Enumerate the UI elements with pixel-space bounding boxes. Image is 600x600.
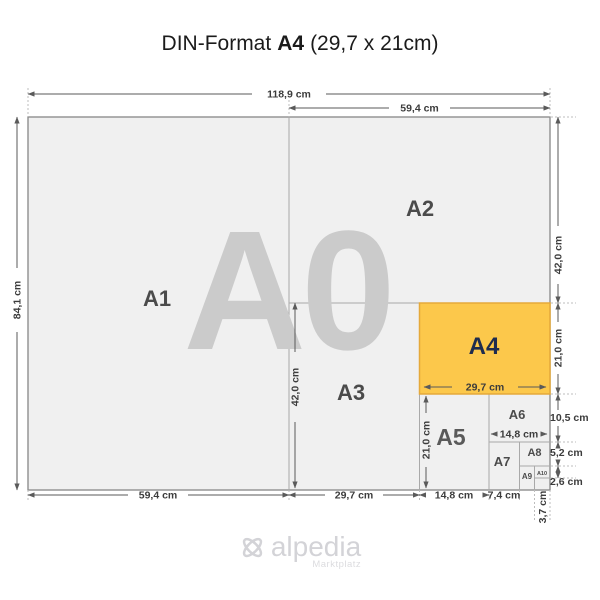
a5-label: A5 [436, 424, 466, 450]
a6-label: A6 [509, 407, 526, 422]
page-title: DIN-Format A4 (29,7 x 21cm) [0, 32, 600, 56]
format-diagram: A0 A1 A2 A3 A4 A5 A6 A7 A8 A9 A10 [0, 0, 600, 600]
a4-height-value: 21,0 cm [553, 329, 565, 368]
title-prefix: DIN-Format [162, 32, 272, 56]
a0-watermark-label: A0 [183, 196, 390, 386]
a3-height-value: 42,0 cm [290, 368, 302, 407]
a4-width-value: 29,7 cm [466, 382, 505, 394]
brand-tagline: Marktplatz [271, 559, 361, 570]
alpedia-logo: alpedia Marktplatz [0, 533, 600, 570]
dimension-a2-height: 42,0 cm [553, 117, 565, 303]
dimension-a2-width: 59,4 cm [289, 103, 550, 115]
a6-height-value: 10,5 cm [550, 412, 589, 424]
dimension-a10-height: 2,6 cm [550, 466, 583, 488]
a10-label: A10 [537, 471, 547, 477]
logo-text: alpedia Marktplatz [271, 533, 361, 570]
dimension-a6-height: 10,5 cm [550, 394, 589, 442]
a3-width-value: 29,7 cm [335, 490, 374, 502]
a2-width-value: 59,4 cm [400, 103, 439, 115]
a2-label: A2 [406, 196, 434, 221]
a8-height-value: 5,2 cm [550, 447, 583, 459]
a9-label: A9 [522, 472, 533, 481]
title-format: A4 [277, 32, 304, 56]
a0-width-value: 118,9 cm [267, 89, 311, 101]
dimension-a10-width: 3,7 cm [537, 491, 549, 524]
dimension-a3-width: 29,7 cm [289, 490, 420, 502]
a8-label: A8 [527, 447, 541, 459]
a2-height-value: 42,0 cm [553, 236, 565, 275]
a4-label: A4 [469, 333, 500, 360]
dimension-a7-width: 7,4 cm [488, 490, 521, 502]
a6-width-value: 14,8 cm [500, 429, 539, 441]
a10-width-value: 3,7 cm [537, 491, 549, 524]
a7-width-value: 7,4 cm [488, 490, 521, 502]
brand-name: alpedia [271, 533, 361, 561]
a1-label: A1 [143, 286, 171, 311]
title-size: (29,7 x 21cm) [310, 32, 438, 56]
a0-height-value: 84,1 cm [12, 281, 24, 320]
a7-label: A7 [494, 454, 511, 469]
a3-label: A3 [337, 380, 365, 405]
a5-width-value: 14,8 cm [435, 490, 474, 502]
a5-height-value: 21,0 cm [421, 421, 433, 460]
alpedia-logo-icon [239, 533, 266, 560]
dimension-a5-width: 14,8 cm [420, 490, 490, 502]
din-format-infographic: DIN-Format A4 (29,7 x 21cm) A0 [0, 0, 600, 600]
dimension-a1-width: 59,4 cm [28, 490, 289, 502]
a1-width-value: 59,4 cm [139, 490, 178, 502]
dimension-a0-width: 118,9 cm [28, 89, 550, 101]
dimension-a4-height: 21,0 cm [553, 303, 565, 394]
dimension-a8-height: 5,2 cm [550, 442, 583, 466]
dimension-a0-height: 84,1 cm [12, 117, 24, 490]
a10-height-value: 2,6 cm [550, 476, 583, 488]
